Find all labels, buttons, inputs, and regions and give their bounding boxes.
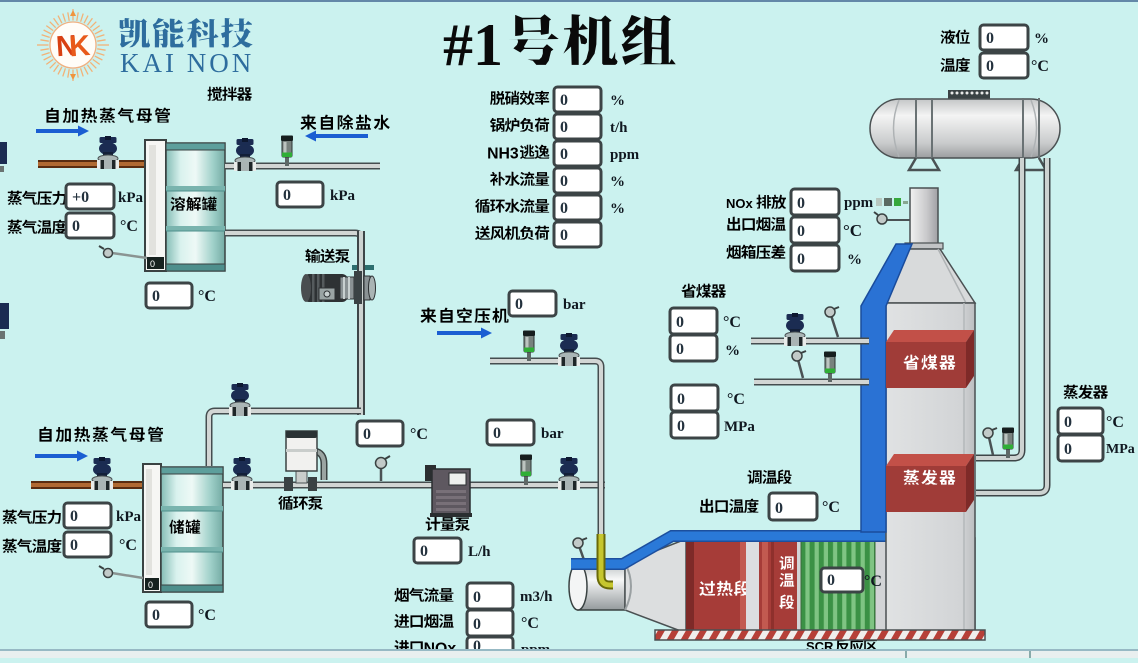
svg-text:L/h: L/h [468,544,491,560]
svg-text:kPa: kPa [330,188,356,204]
svg-text:kPa: kPa [116,509,142,525]
svg-text:°C: °C [521,615,539,632]
svg-text:kPa: kPa [118,190,144,206]
svg-text:0: 0 [148,580,153,590]
svg-text:0: 0 [560,227,568,244]
svg-text:0: 0 [72,218,80,235]
svg-text:bar: bar [563,297,586,313]
svg-text:0: 0 [283,187,291,204]
svg-text:K: K [68,30,91,63]
svg-text:°C: °C [120,218,138,235]
svg-text:0: 0 [797,195,805,212]
svg-text:°C: °C [410,426,428,443]
svg-text:%: % [1034,31,1049,47]
svg-text:0: 0 [473,589,481,606]
svg-text:0: 0 [70,537,78,554]
svg-text:°C: °C [822,499,840,516]
svg-text:%: % [610,174,625,190]
svg-text:0: 0 [560,146,568,163]
svg-text:0: 0 [677,391,685,408]
svg-text:0: 0 [560,200,568,217]
svg-text:0: 0 [775,500,783,517]
svg-text:MPa: MPa [724,419,755,435]
svg-text:m3/h: m3/h [520,589,553,605]
svg-text:0: 0 [827,572,835,589]
svg-text:0: 0 [473,616,481,633]
svg-text:0: 0 [1064,414,1072,431]
svg-text:0: 0 [515,296,523,313]
svg-text:0: 0 [677,418,685,435]
svg-text:0: 0 [797,251,805,268]
svg-text:%: % [847,252,862,268]
svg-text:°C: °C [1031,58,1049,75]
svg-text:°C: °C [198,288,216,305]
svg-text:°C: °C [864,573,882,590]
svg-text:0: 0 [363,426,371,443]
svg-text:0: 0 [150,259,155,269]
svg-text:0: 0 [152,607,160,624]
svg-text:ppm: ppm [610,147,640,163]
svg-text:0: 0 [560,173,568,190]
svg-text:0: 0 [152,288,160,305]
svg-text:%: % [610,93,625,109]
svg-text:°C: °C [1106,414,1124,431]
svg-text:0: 0 [70,508,78,525]
svg-text:0: 0 [560,92,568,109]
svg-text:0: 0 [420,543,428,560]
svg-text:%: % [610,201,625,217]
svg-text:KAI NON: KAI NON [120,48,254,78]
svg-text:+0: +0 [72,189,89,206]
svg-text:0: 0 [986,30,994,47]
svg-text:°C: °C [198,607,216,624]
svg-text:bar: bar [541,426,564,442]
svg-text:0: 0 [986,58,994,75]
svg-text:#1: #1 [443,12,503,78]
svg-text:0: 0 [1064,441,1072,458]
svg-text:0: 0 [493,425,501,442]
svg-text:0: 0 [676,314,684,331]
svg-text:°C: °C [119,537,137,554]
svg-text:°C: °C [727,391,745,408]
svg-text:%: % [725,343,740,359]
svg-text:t/h: t/h [610,120,628,136]
svg-text:MPa: MPa [1106,442,1135,457]
svg-text:°C: °C [843,221,862,240]
svg-text:0: 0 [676,341,684,358]
svg-text:ppm: ppm [844,195,874,211]
svg-text:°C: °C [723,314,741,331]
svg-text:0: 0 [560,119,568,136]
svg-text:NH3: NH3 [487,146,519,163]
svg-text:NOx: NOx [726,196,754,211]
svg-text:0: 0 [797,223,805,240]
